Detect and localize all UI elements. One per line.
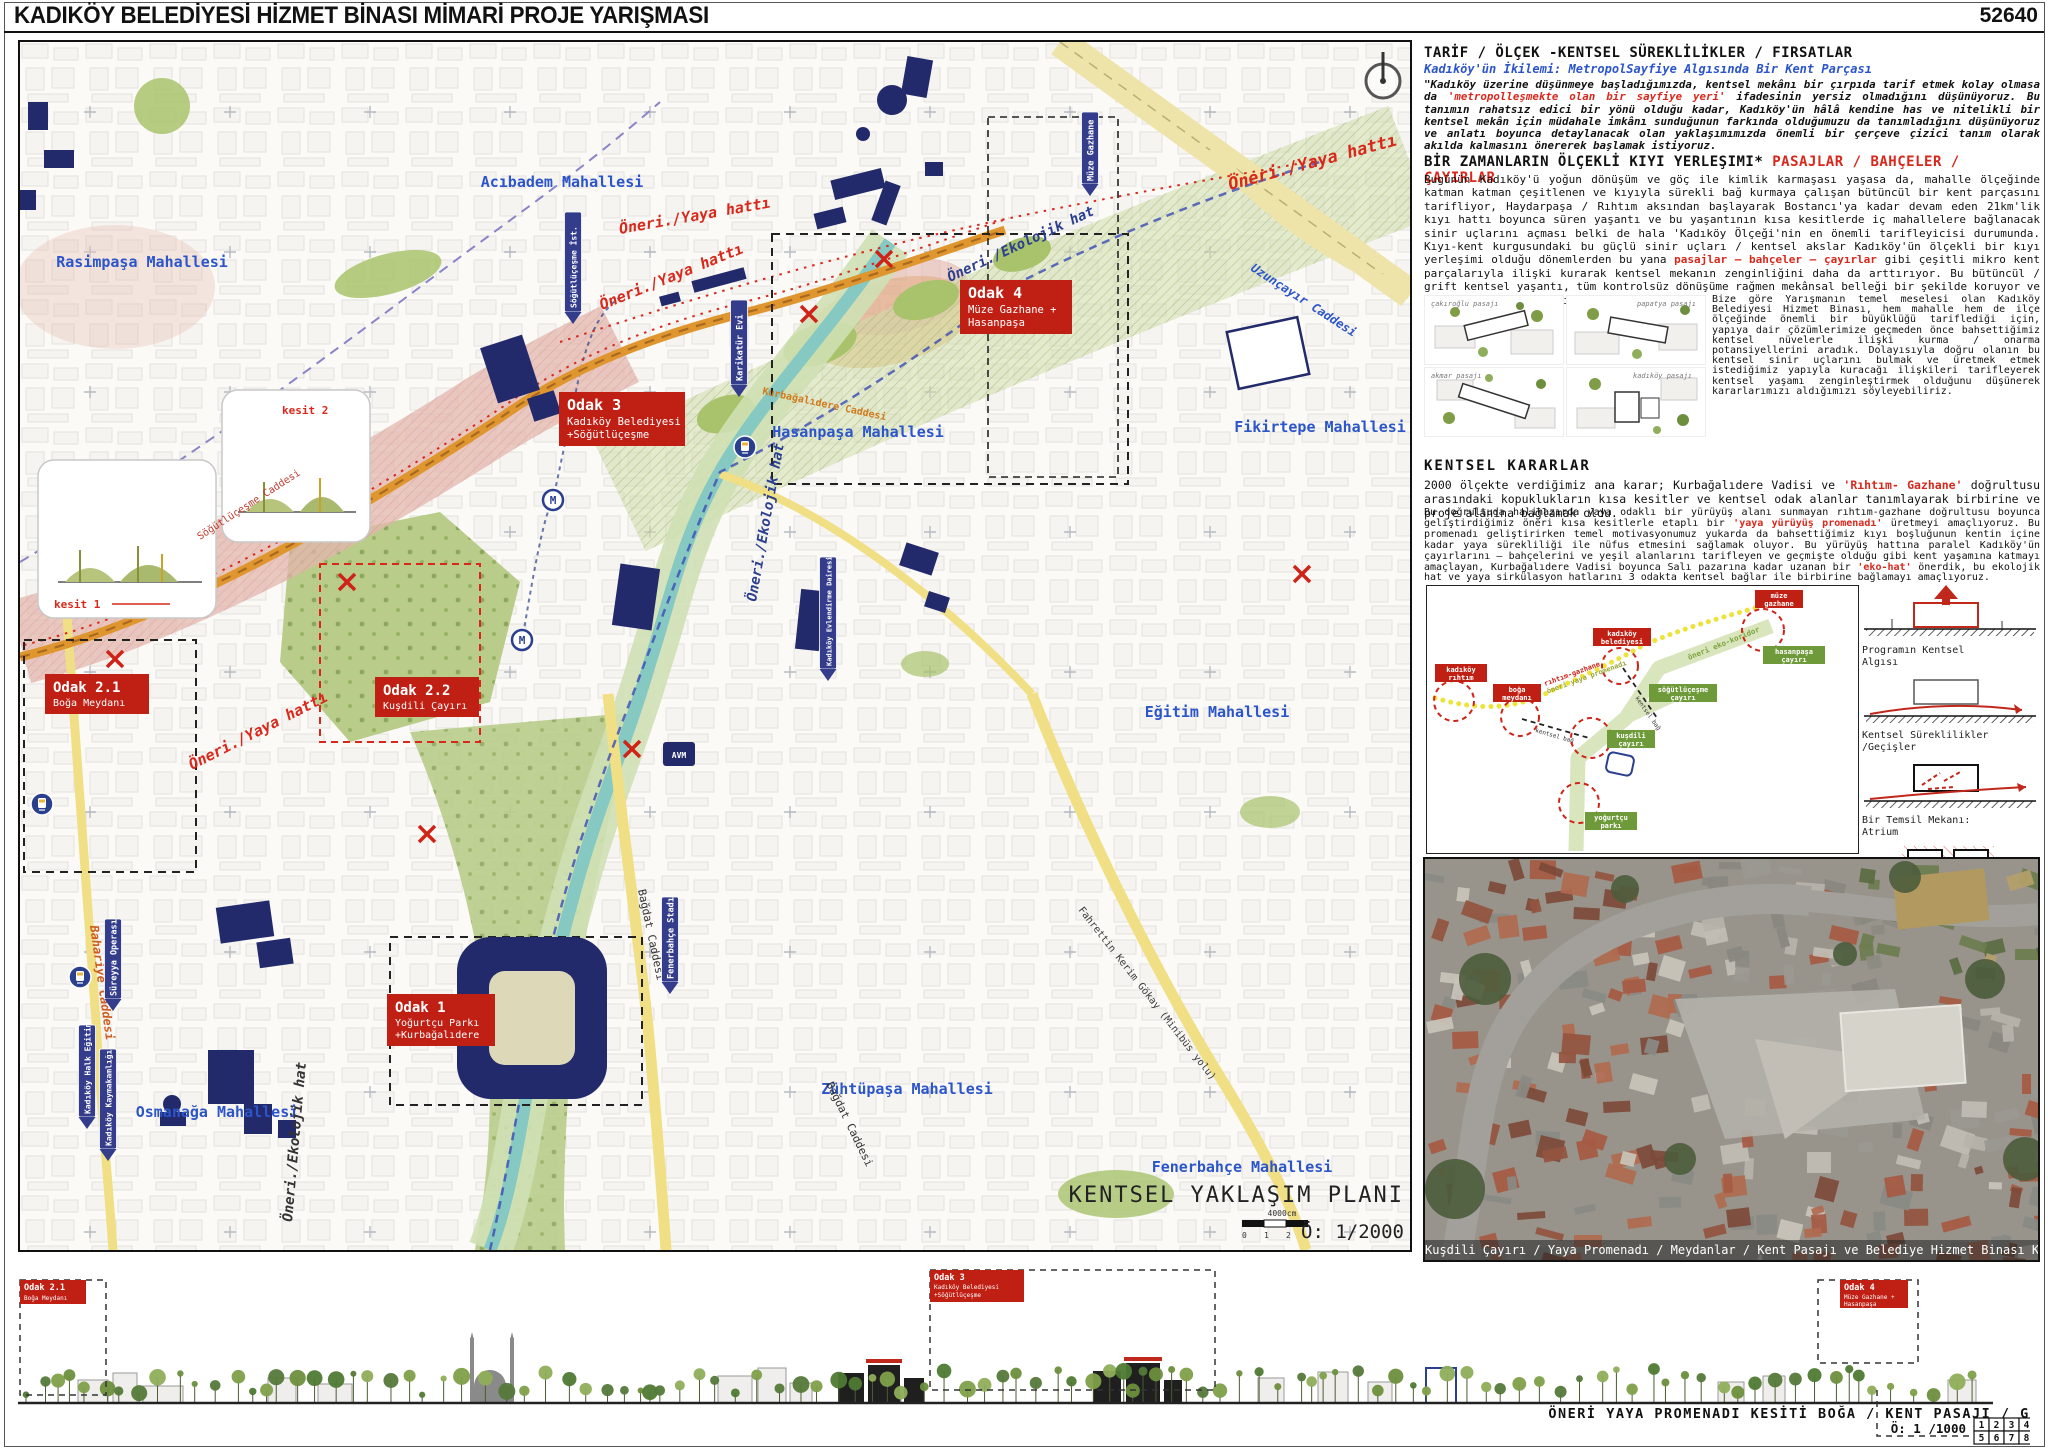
svg-text:Müze Gazhane +: Müze Gazhane +: [1844, 1294, 1895, 1301]
svg-text:+Kurbağalıdere: +Kurbağalıdere: [395, 1029, 479, 1041]
kentsel-bag-2: kentsel bağ: [1534, 727, 1574, 745]
svg-text:Odak 3: Odak 3: [567, 396, 621, 414]
svg-text:parkı: parkı: [1600, 822, 1621, 830]
pasaj-2-caption: papatya pasajı: [1637, 300, 1696, 308]
photo-caption: Kuşdili Çayırı / Yaya Promenadı / Meydan…: [1425, 1240, 2038, 1260]
svg-text:rıhtım: rıhtım: [1448, 674, 1473, 682]
sheet-2: 2: [1994, 1420, 2000, 1431]
kesit-1-label: kesit 1: [54, 598, 101, 611]
avm-label: AVM: [672, 751, 687, 760]
competition-board: KADIKÖY BELEDİYESİ HİZMET BİNASI MİMARİ …: [0, 0, 2048, 1449]
poi-sogutlucesme-ist: Söğütlüçeşme İst.: [565, 212, 582, 324]
svg-text:Söğütlüçeşme İst.: Söğütlüçeşme İst.: [569, 226, 579, 308]
page-title: KADIKÖY BELEDİYESİ HİZMET BİNASI MİMARİ …: [14, 2, 709, 30]
svg-text:Odak 4: Odak 4: [968, 284, 1022, 302]
svg-text:Kadıköy Belediyesi: Kadıköy Belediyesi: [567, 416, 681, 428]
tram-icon: [734, 436, 756, 458]
p4-highlight-1: 'yaya yürüyüş promenadı': [1733, 518, 1882, 529]
svg-text:belediyesi: belediyesi: [1601, 638, 1643, 646]
p3-highlight: 'Rıhtım- Gazhane': [1843, 478, 1962, 492]
svg-text:Odak 1: Odak 1: [395, 1000, 446, 1016]
pasaj-plan-4: kadıköy pasajı: [1566, 367, 1706, 437]
svg-text:Hasanpaşa: Hasanpaşa: [1844, 1301, 1877, 1308]
side-paragraph: Bize göre Yarışmanın temel meselesi olan…: [1712, 295, 2040, 397]
pasaj-plan-1: çakıroğlu pasajı: [1424, 295, 1564, 365]
sketch-1-caption: Programın KentselAlgısı: [1862, 645, 2040, 668]
svg-text:çayırı: çayırı: [1618, 740, 1643, 748]
label-fikirtepe: Fikirtepe Mahallesi: [1234, 418, 1406, 436]
section-odak-4: Odak 4 Müze Gazhane + Hasanpaşa: [1840, 1280, 1908, 1308]
section-1-heading: TARİF / ÖLÇEK -KENTSEL SÜREKLİLİKLER / F…: [1424, 45, 1853, 61]
svg-text:Odak 2.1: Odak 2.1: [53, 680, 120, 696]
poi-fb-stadi: Fenerbahçe Stadı: [662, 897, 679, 994]
p4-highlight-2: 'eko-hat': [1857, 562, 1911, 573]
svg-text:Odak 3: Odak 3: [934, 1273, 965, 1283]
odak-1-box: Odak 1 Yoğurtçu Parkı +Kurbağalıdere: [387, 994, 495, 1046]
photo-hizmet-binasi: [1840, 1005, 1965, 1091]
odak-4-box: Odak 4 Müze Gazhane + Hasanpaşa: [960, 280, 1072, 334]
section-3-heading: KENTSEL KARARLAR: [1424, 458, 1591, 474]
p1-highlight: 'metropolleşmekte olan bir sayfiye yeri': [1448, 90, 1726, 103]
aerial-photo: Kuşdili Çayırı / Yaya Promenadı / Meydan…: [1423, 857, 2040, 1262]
sheet-7: 7: [2009, 1433, 2015, 1444]
p2-highlight: pasajlar – bahçeler – çayırlar: [1674, 253, 1877, 266]
svg-text:Karikatür Evi: Karikatür Evi: [735, 314, 746, 381]
svg-text:+Söğütlüçeşme: +Söğütlüçeşme: [567, 429, 649, 441]
node-hasanpasa: hasanpaşaçayırı: [1763, 646, 1825, 664]
svg-text:Hasanpaşa: Hasanpaşa: [968, 317, 1025, 329]
node-boga: boğameydanı: [1493, 684, 1541, 702]
svg-text:kadıköy: kadıköy: [1446, 666, 1476, 674]
svg-text:Müze Gazhane: Müze Gazhane: [1087, 120, 1097, 181]
paragraph-4: Bu doğrultuda halihazırda yaya odaklı bi…: [1424, 508, 2040, 584]
sheet-4: 4: [2024, 1420, 2030, 1431]
pasaj-3-caption: akmar pasajı: [1431, 372, 1482, 380]
svg-text:Odak 4: Odak 4: [1844, 1283, 1875, 1293]
svg-text:Müze Gazhane +: Müze Gazhane +: [968, 304, 1057, 316]
svg-text:+Söğütlüçeşme: +Söğütlüçeşme: [934, 1292, 981, 1299]
scalebar-tick: 2: [1286, 1231, 1291, 1240]
rasimpasa-tint: [20, 225, 215, 349]
urban-approach-map: AVM kesit 1 kesit 2: [18, 40, 1412, 1252]
scalebar-length: 4000cm: [1268, 1209, 1297, 1218]
poi-halk-egitim: Kadıköy Halk Eğitim: [79, 1022, 96, 1129]
svg-text:Yoğurtçu Parkı: Yoğurtçu Parkı: [395, 1017, 479, 1029]
svg-text:Kadıköy Belediyesi: Kadıköy Belediyesi: [934, 1284, 999, 1291]
sheet-5: 5: [1979, 1433, 1985, 1444]
svg-text:çayırı: çayırı: [1781, 656, 1806, 664]
s2-heading-black: BİR ZAMANLARIN ÖLÇEKLİ KIYI YERLEŞIMI*: [1424, 154, 1772, 170]
entry-code: 52640: [1980, 4, 2038, 28]
svg-text:gazhane: gazhane: [1764, 600, 1794, 608]
scalebar-tick: 0: [1242, 1231, 1247, 1240]
kesit-2-box: kesit 2: [222, 390, 370, 542]
kesit-2-label: kesit 2: [282, 404, 328, 417]
section-title: ÖNERİ YAYA PROMENADI KESİTİ BOĞA / KENT …: [1548, 1404, 2030, 1422]
label-rasimpasa: Rasimpaşa Mahallesi: [56, 253, 228, 271]
sheet-1: 1: [1979, 1420, 1985, 1431]
node-gazhane: müzegazhane: [1755, 590, 1803, 608]
label-zuhtupasa: Zühtüpaşa Mahallesi: [821, 1080, 993, 1098]
svg-text:kuşdili: kuşdili: [1616, 732, 1646, 740]
sheet-6: 6: [1994, 1433, 2000, 1444]
svg-text:çayırı: çayırı: [1670, 694, 1695, 702]
svg-text:hasanpaşa: hasanpaşa: [1775, 648, 1813, 656]
kesit-1-box: kesit 1: [38, 460, 216, 618]
label-egitim: Eğitim Mahallesi: [1145, 703, 1290, 721]
node-yogurtcu: yoğurtçuparkı: [1585, 812, 1637, 830]
concept-diagram: kentsel bağ kentsel bağ rıhtım-gazhane ö…: [1426, 585, 1859, 854]
svg-text:söğütlüçeşme: söğütlüçeşme: [1658, 686, 1709, 694]
odak-3-box: Odak 3 Kadıköy Belediyesi +Söğütlüçeşme: [559, 392, 685, 446]
odak-22-box: Odak 2.2 Kuşdili Çayırı: [375, 677, 479, 717]
eko-koridor-label: öneri eko-koridor: [1686, 625, 1761, 662]
label-acibadem: Acıbadem Mahallesi: [481, 173, 644, 191]
poi-karikatur-evi: Karikatür Evi: [731, 300, 748, 397]
poi-muze-gazhane: Müze Gazhane: [1082, 112, 1099, 196]
section-1-subtitle: Kadıköy'ün İkilemi: MetropolSayfiye Algı…: [1424, 62, 1872, 76]
svg-text:Kadıköy Kaymakamlığı: Kadıköy Kaymakamlığı: [105, 1049, 114, 1146]
node-sogutlucesme: söğütlüçeşmeçayırı: [1649, 684, 1717, 702]
svg-text:M: M: [550, 494, 557, 507]
tram-icon: [31, 793, 53, 815]
label-osmanaga: Osmanağa Mahallesi: [136, 1103, 299, 1121]
node-rihtim: kadıköyrıhtım: [1435, 664, 1487, 682]
p2-text: Bugünün Kadıköy'ü yoğun dönüşüm ve göç i…: [1424, 173, 2040, 266]
sheet-index-grid: 1 2 3 4 5 6 7 8: [1974, 1418, 2030, 1444]
tram-icon: [69, 966, 91, 988]
section-odak-21: Odak 2.1 Boğa Meydanı: [20, 1280, 86, 1304]
svg-text:meydanı: meydanı: [1502, 694, 1532, 702]
svg-text:Boğa Meydanı: Boğa Meydanı: [24, 1295, 68, 1302]
svg-text:Odak 2.2: Odak 2.2: [383, 683, 450, 699]
svg-text:Odak 2.1: Odak 2.1: [24, 1283, 65, 1293]
sketch-2: [1862, 674, 2040, 726]
sheet-3: 3: [2009, 1420, 2015, 1431]
poi-evlendirme: Kadıköy Evlendirme Dairesi: [820, 556, 837, 681]
odak-21-box: Odak 2.1 Boğa Meydanı: [45, 674, 149, 714]
node-belediye: kadıköybelediyesi: [1593, 628, 1651, 646]
svg-text:yoğurtçu: yoğurtçu: [1594, 814, 1628, 822]
pasaj-4-caption: kadıköy pasajı: [1633, 372, 1692, 380]
promenade-section: Odak 2.1 Boğa Meydanı Odak 3 Kadıköy Bel…: [18, 1268, 2030, 1446]
svg-text:müze: müze: [1771, 592, 1788, 600]
pasaj-plan-3: akmar pasajı: [1424, 367, 1564, 437]
metro-icon: M: [543, 490, 563, 510]
p3-text: 2000 ölçekte verdiğimiz ana karar; Kurba…: [1424, 478, 1843, 492]
svg-text:Süreyya Operası: Süreyya Operası: [110, 919, 120, 996]
poi-kaymakamlik: Kadıköy Kaymakamlığı: [100, 1049, 117, 1161]
node-kusdili: kuşdiliçayırı: [1607, 730, 1655, 748]
sketch-3: [1862, 759, 2040, 811]
section-odak-labels: Odak 2.1 Boğa Meydanı Odak 3 Kadıköy Bel…: [20, 1270, 1908, 1308]
svg-text:Boğa Meydanı: Boğa Meydanı: [53, 697, 125, 709]
paragraph-2: Bugünün Kadıköy'ü yoğun dönüşüm ve göç i…: [1424, 173, 2040, 307]
label-fenerbahce: Fenerbahçe Mahallesi: [1152, 1158, 1333, 1176]
section-tree-row: [23, 1363, 1977, 1403]
svg-text:Kadıköy Evlendirme Dairesi: Kadıköy Evlendirme Dairesi: [826, 556, 834, 666]
scalebar-tick: 1: [1264, 1231, 1269, 1240]
header-divider: [4, 31, 2044, 33]
stadium-outline: [1605, 752, 1635, 777]
label-hasanpasa: Hasanpaşa Mahallesi: [772, 423, 944, 441]
metro-icon: M: [512, 630, 532, 650]
sketch-3-caption: Bir Temsil Mekanı:Atrium: [1862, 815, 2040, 838]
section-odak-3: Odak 3 Kadıköy Belediyesi +Söğütlüçeşme: [930, 1270, 1024, 1302]
svg-text:Kadıköy Halk Eğitim: Kadıköy Halk Eğitim: [83, 1022, 93, 1114]
pasaj-plan-2: papatya pasajı: [1566, 295, 1706, 365]
svg-text:M: M: [519, 634, 526, 647]
section-scale: Ö: 1 /1000: [1891, 1421, 1966, 1436]
map-scale: Ö: 1/2000: [1301, 1220, 1404, 1243]
promenade-label: rıhtım-gazhane öneri yaya promenadı: [1543, 652, 1628, 696]
sketch-1: [1862, 583, 2040, 641]
svg-text:Fenerbahçe Stadı: Fenerbahçe Stadı: [667, 897, 677, 979]
map-title: KENTSEL YAKLAŞIM PLANI: [1069, 1183, 1404, 1208]
paragraph-1: "Kadıköy üzerine düşünmeye başladığımızd…: [1424, 79, 2040, 153]
svg-text:kadıköy: kadıköy: [1607, 630, 1637, 638]
avm-building: AVM: [663, 742, 695, 766]
map-canvas: AVM kesit 1 kesit 2: [20, 42, 1410, 1250]
poi-sureyya: Süreyya Operası: [105, 919, 122, 1011]
svg-text:boğa: boğa: [1509, 686, 1526, 694]
pasaj-1-caption: çakıroğlu pasajı: [1431, 300, 1498, 308]
svg-text:Kuşdili Çayırı: Kuşdili Çayırı: [383, 701, 467, 712]
sheet-8: 8: [2024, 1433, 2030, 1444]
sketch-2-caption: Kentsel Süreklilikler/Geçişler: [1862, 730, 2040, 753]
